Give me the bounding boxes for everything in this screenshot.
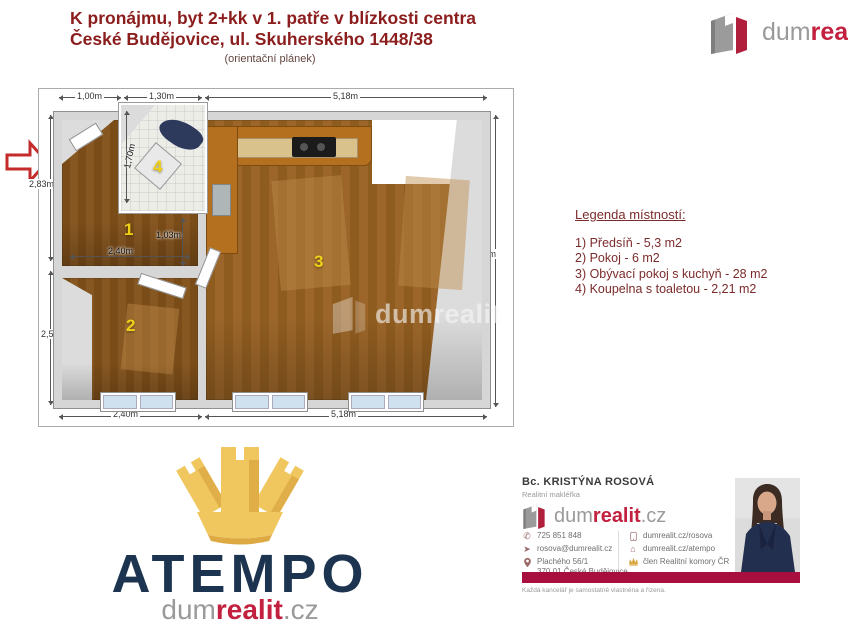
disclaimer: Každá kancelář je samostatně vlastněna a… bbox=[522, 587, 666, 594]
kitchen-sink bbox=[212, 184, 231, 216]
room-bedroom bbox=[62, 278, 198, 400]
window-pane bbox=[235, 395, 269, 409]
brand-realit: realit bbox=[811, 18, 848, 46]
watermark-text: dumrealit bbox=[375, 299, 501, 330]
send-icon: ➤ bbox=[522, 544, 532, 554]
atempo-crown-icon bbox=[155, 442, 325, 547]
membership: člen Realitní komory ČR bbox=[643, 557, 729, 567]
living-window-2 bbox=[348, 392, 424, 412]
watermark: dumrealit bbox=[331, 294, 501, 334]
brand-tld: .cz bbox=[641, 505, 667, 527]
room-living bbox=[206, 120, 482, 400]
brand-text: dumrealit.cz bbox=[762, 18, 848, 47]
brand-realit: realit bbox=[593, 505, 641, 527]
burner bbox=[317, 143, 325, 151]
agent-name: Bc. KRISTÝNA ROSOVÁ bbox=[522, 476, 654, 488]
dim-line bbox=[70, 256, 190, 257]
contact-web-office: ⌂ dumrealit.cz/atempo bbox=[628, 544, 715, 554]
web-profile: dumrealit.cz/rosova bbox=[643, 531, 712, 541]
brand-text: dumrealit.cz bbox=[554, 505, 666, 528]
listing-flyer: K pronájmu, byt 2+kk v 1. patře v blízko… bbox=[0, 0, 848, 636]
home-icon: ⌂ bbox=[628, 544, 638, 554]
dumrealit-box-icon bbox=[704, 10, 754, 54]
legend-item-2: 2) Pokoj - 6 m2 bbox=[575, 251, 767, 267]
phone-number: 725 851 848 bbox=[537, 531, 582, 541]
dumrealit-logo-agent: dumrealit.cz bbox=[522, 503, 666, 529]
room-number-bath: 4 bbox=[153, 157, 162, 177]
window-pane bbox=[388, 395, 422, 409]
address-line1: Plachého 56/1 bbox=[537, 557, 588, 566]
dim-hall-depth: 1,03m bbox=[154, 230, 183, 240]
watermark-box-icon bbox=[331, 294, 367, 334]
contact-divider bbox=[618, 531, 619, 570]
room-number-bedroom: 2 bbox=[126, 316, 135, 336]
title-line1: K pronájmu, byt 2+kk v 1. patře v blízko… bbox=[70, 8, 540, 29]
living-window-1 bbox=[232, 392, 308, 412]
window-pane bbox=[272, 395, 306, 409]
window-pane bbox=[351, 395, 385, 409]
legend-item-3: 3) Obývací pokoj s kuchyň - 28 m2 bbox=[575, 267, 767, 283]
dim-left-upper: 2,83m bbox=[27, 179, 56, 189]
bedroom-window bbox=[100, 392, 176, 412]
cooktop bbox=[292, 137, 336, 157]
legend: Legenda místností: 1) Předsíň - 5,3 m2 2… bbox=[575, 207, 767, 298]
dim-line bbox=[182, 218, 183, 266]
burner bbox=[300, 143, 308, 151]
contact-membership: člen Realitní komory ČR bbox=[628, 557, 729, 568]
room-number-hall: 1 bbox=[124, 220, 133, 240]
window-pane bbox=[140, 395, 174, 409]
dim-line bbox=[495, 115, 496, 407]
brand-color-bar bbox=[522, 572, 800, 583]
brand-dum: dum bbox=[554, 505, 593, 527]
bedroom-door bbox=[137, 273, 186, 299]
map-pin-icon bbox=[522, 557, 532, 570]
brand-tld: .cz bbox=[283, 594, 319, 625]
crown-icon bbox=[628, 557, 638, 568]
light-wood-patch bbox=[271, 175, 350, 291]
title-line2: České Budějovice, ul. Skuherského 1448/3… bbox=[70, 29, 540, 50]
dim-top-left: 1,00m bbox=[75, 91, 104, 101]
brand-dum: dum bbox=[762, 18, 811, 46]
living-door bbox=[195, 247, 221, 289]
page-title: K pronájmu, byt 2+kk v 1. patře v blízko… bbox=[70, 8, 540, 50]
legend-title: Legenda místností: bbox=[575, 207, 767, 223]
contact-web-profile: dumrealit.cz/rosova bbox=[628, 531, 712, 544]
agent-photo bbox=[735, 478, 800, 572]
web-office: dumrealit.cz/atempo bbox=[643, 544, 715, 554]
dumrealit-logo-header: dumrealit.cz bbox=[704, 10, 848, 54]
phone-icon: ✆ bbox=[522, 531, 532, 541]
legend-item-4: 4) Koupelna s toaletou - 2,21 m2 bbox=[575, 282, 767, 298]
contact-email: ➤ rosova@dumrealit.cz bbox=[522, 544, 612, 554]
dim-top-mid: 1,30m bbox=[147, 91, 176, 101]
brand-dum: dum bbox=[161, 594, 215, 625]
contact-phone: ✆ 725 851 848 bbox=[522, 531, 582, 541]
agent-role: Realitní makléřka bbox=[522, 490, 580, 499]
email-address: rosova@dumrealit.cz bbox=[537, 544, 612, 554]
brand-realit: realit bbox=[216, 594, 283, 625]
mobile-icon bbox=[628, 531, 638, 544]
room-number-living: 3 bbox=[314, 252, 323, 272]
dim-hall-width: 2,40m bbox=[106, 246, 135, 256]
window-pane bbox=[103, 395, 137, 409]
light-wood-patch bbox=[398, 176, 470, 290]
room-bath: 4 1,70m bbox=[119, 103, 207, 213]
dim-top-right: 5,18m bbox=[331, 91, 360, 101]
dumrealit-box-icon bbox=[522, 503, 546, 529]
atempo-brand-text: dumrealit.cz bbox=[92, 594, 388, 626]
legend-item-1: 1) Předsíň - 5,3 m2 bbox=[575, 236, 767, 252]
subtitle: (orientační plánek) bbox=[70, 53, 470, 65]
floorplan: 1,00m 1,30m 5,18m 2,83m 2,50m 5,43m 2,40… bbox=[38, 88, 514, 427]
